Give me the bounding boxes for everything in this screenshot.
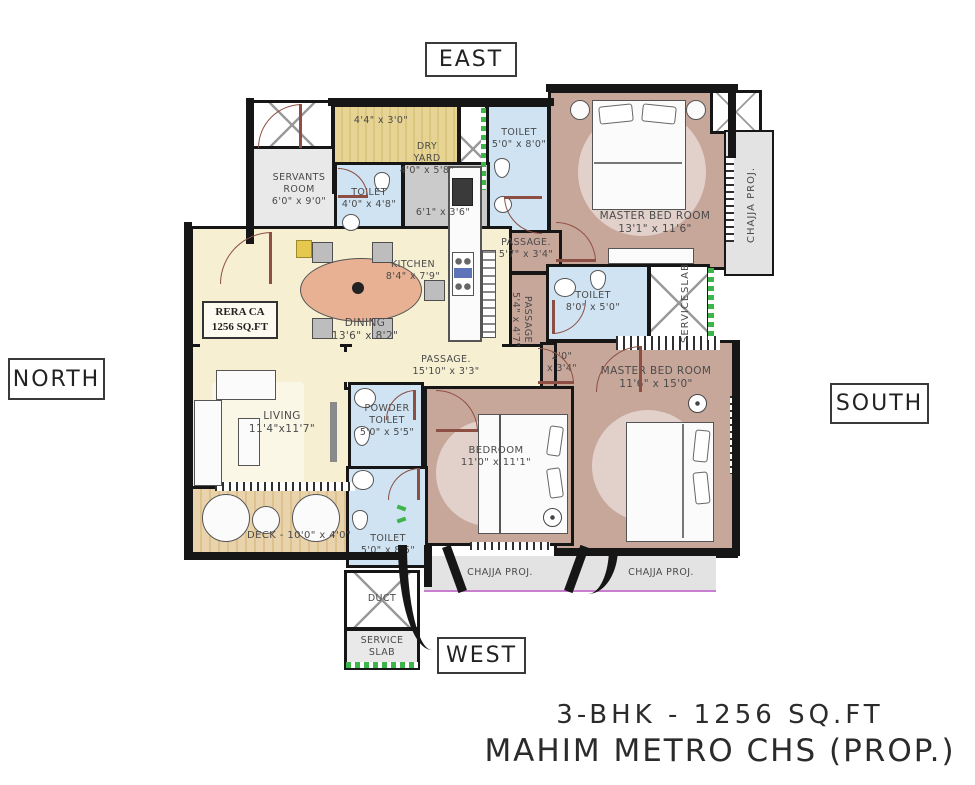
label-chajja-bottom-2: CHAJJA PROJ.: [608, 566, 714, 580]
room-dims: 5'0" x 5'5": [360, 427, 414, 439]
dresser-master1: [608, 248, 694, 264]
room-dims: 13'6" x 8'2": [332, 330, 399, 343]
compass-east-label: EAST: [439, 47, 503, 72]
door-powder-toilet: [386, 390, 416, 420]
pillow: [598, 103, 634, 124]
door-niche: [538, 348, 574, 384]
fan-icon: [688, 394, 707, 413]
label-chajja-right: CHAJJA PROJ.: [742, 150, 762, 260]
chajja-x-box: [710, 90, 762, 134]
room-dims: 5'0" x 8'0": [492, 139, 546, 151]
pillow: [692, 471, 710, 504]
window-living-deck: [215, 482, 355, 491]
chajja-label: CHAJJA PROJ.: [467, 567, 533, 579]
service-slab-line: SERVICE: [680, 294, 693, 343]
room-dims: 6'1" x 3'6": [416, 207, 470, 219]
dining-centerpiece: [352, 282, 364, 294]
wall-right-master2: [732, 340, 740, 556]
wall-left-servants: [246, 98, 254, 244]
room-dims: 5'7" x 3'4": [499, 249, 553, 261]
duct-label: DUCT: [368, 593, 396, 605]
wall-right-master1: [728, 92, 736, 158]
sofa-top: [216, 370, 276, 400]
rera-line: RERA CA: [204, 305, 276, 320]
door-dining-entry: [220, 232, 272, 284]
compass-east: EAST: [425, 42, 517, 77]
label-dry-yard: DRY YARD 4'0" x 5'8": [398, 132, 456, 186]
label-passage-main: PASSAGE. 15'10" x 3'3": [366, 350, 526, 382]
compass-west-label: WEST: [446, 643, 517, 668]
door-bedroom: [436, 390, 478, 432]
door-toilet-top: [504, 196, 542, 234]
label-master-bedroom-1: MASTER BED ROOM 13'1" x 11'6": [590, 202, 720, 244]
sofa-left: [194, 400, 222, 486]
room-name: TOILET: [501, 127, 537, 139]
compass-west: WEST: [437, 637, 526, 674]
chajja-label: CHAJJA PROJ.: [628, 567, 694, 579]
floor-plan-canvas: SERVANTS ROOM 6'0" x 9'0" 4'4" x 3'0" DR…: [0, 0, 975, 785]
label-passage-kitchen: 6'1" x 3'6": [402, 206, 484, 220]
plan-subtitle: 3-BHK - 1256 SQ.FT: [470, 700, 970, 730]
nightstand-lamp: [686, 100, 706, 120]
label-servants-room: SERVANTS ROOM 6'0" x 9'0": [256, 170, 342, 210]
kitchen-stove-tray: [454, 268, 472, 278]
bed-master2-blanket-line: [682, 424, 684, 538]
room-dims: 11'0" x 11'1": [461, 457, 531, 470]
room-dims: 6'0" x 9'0": [272, 196, 326, 208]
compass-north: NORTH: [8, 358, 105, 400]
open-plan-patch: [338, 352, 356, 382]
pillow: [641, 103, 677, 124]
room-dims: 4'4" x 3'0": [354, 115, 408, 127]
room-name: TOILET: [370, 533, 406, 545]
chajja-label: CHAJJA PROJ.: [746, 167, 759, 243]
room-dims: 8'4" x 7'9": [386, 271, 440, 283]
label-yard-ledge: 4'4" x 3'0": [338, 114, 424, 128]
door-master1: [556, 222, 596, 262]
door-master2: [596, 346, 642, 392]
compass-south-label: SOUTH: [836, 391, 923, 416]
room-name: SERVANTS ROOM: [256, 172, 342, 196]
green-vent-strip-service-bottom: [346, 662, 418, 668]
rera-badge: RERA CA 1256 SQ.FT: [202, 301, 278, 339]
basin-icon: [342, 214, 360, 231]
room-name: MASTER BED ROOM: [600, 210, 711, 223]
service-slab-line: SERVICE: [361, 635, 404, 647]
room-dims: 4'0" x 5'8": [400, 165, 454, 177]
room-name: PASSAGE.: [501, 237, 551, 249]
wall-top-yard: [328, 98, 554, 106]
door-toilet-bottom: [388, 468, 420, 500]
compass-south: SOUTH: [830, 383, 929, 424]
title-block: 3-BHK - 1256 SQ.FT MAHIM METRO CHS (PROP…: [470, 700, 970, 769]
room-name: PASSAGE: [521, 296, 533, 343]
room-name: BEDROOM: [469, 445, 524, 458]
window-master1-east: [726, 156, 734, 242]
label-passage-1: PASSAGE. 5'7" x 3'4": [492, 234, 560, 264]
nightstand-lamp: [570, 100, 590, 120]
room-dims: 15'10" x 3'3": [412, 366, 479, 378]
room-name: PASSAGE.: [421, 354, 471, 366]
fan-icon: [543, 508, 562, 527]
wall-bottom-deck: [186, 552, 404, 560]
label-toilet-top: TOILET 5'0" x 8'0": [490, 124, 548, 154]
service-slab-line: SLAB: [680, 263, 693, 293]
room-dims: 5'4" x 4'7": [509, 292, 521, 347]
window-bedroom-south: [470, 542, 550, 550]
label-living: LIVING 11'4"x11'7": [226, 406, 338, 440]
deck-label: DECK - 10'0" x 4'0": [247, 530, 351, 543]
dining-highchair: [296, 240, 312, 258]
wardrobe-bedroom: [478, 414, 500, 534]
room-dims: 11'4"x11'7": [249, 423, 315, 436]
label-bedroom: BEDROOM 11'0" x 11'1": [444, 442, 548, 472]
compass-north-label: NORTH: [13, 367, 100, 392]
door-servants: [258, 104, 302, 148]
service-slab-line: SLAB: [369, 647, 395, 659]
dining-chair: [312, 242, 333, 263]
plan-title: MAHIM METRO CHS (PROP.): [470, 733, 970, 769]
room-name: KITCHEN: [391, 259, 435, 271]
room-name: DINING: [345, 317, 386, 330]
room-name: DRY YARD: [407, 141, 447, 165]
room-dims: 13'1" x 11'6": [618, 223, 692, 236]
door-toilet-servant: [338, 168, 368, 198]
label-service-slab-bottom: SERVICE SLAB: [346, 634, 418, 660]
wall-top-master1: [546, 84, 738, 92]
green-vent-strip-service: [708, 268, 714, 340]
room-dims: 4'0" x 4'8": [342, 199, 396, 211]
basin-icon: [352, 470, 374, 490]
label-service-slab-right: SERVICE SLAB: [668, 270, 704, 336]
label-kitchen: KITCHEN 8'4" x 7'9": [378, 256, 448, 286]
label-dining: DINING 13'6" x 8'2": [310, 314, 420, 346]
room-name: LIVING: [263, 410, 301, 423]
wall-left-main: [184, 222, 192, 560]
door-toilet-mid: [552, 300, 586, 334]
rera-line: 1256 SQ.FT: [204, 320, 276, 335]
bed-master1-blanket-line: [594, 162, 682, 164]
